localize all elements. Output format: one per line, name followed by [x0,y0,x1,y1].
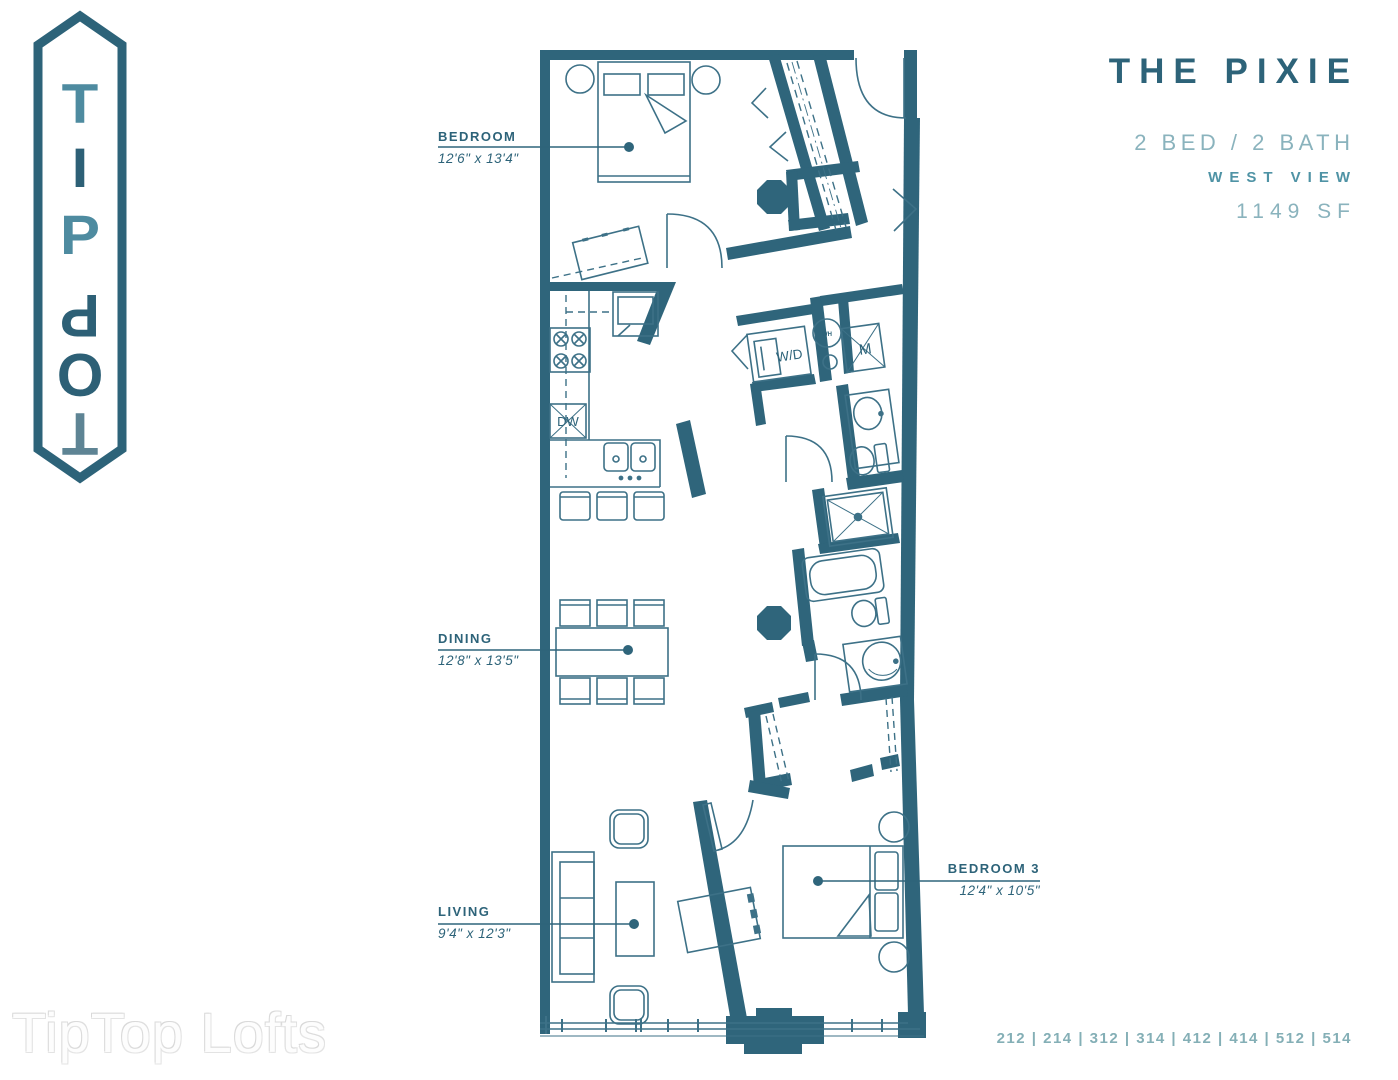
water-heater-label: WH [822,332,832,338]
dresser [573,226,648,279]
bar-stools [560,492,664,520]
room-name: DINING [438,631,519,646]
room-label-bedroom: BEDROOM 12'6" x 13'4" [438,129,519,166]
nightstand-3b [879,942,909,972]
floor-plan: W/D M WH DW [0,0,1398,1080]
room-name: BEDROOM 3 [880,861,1040,876]
bath2-toilet [850,597,889,628]
room-dims: 12'6" x 13'4" [438,151,519,166]
mechanical-label: M [858,340,873,359]
room-name: LIVING [438,904,511,919]
octagon-column-1 [757,180,791,214]
burners [554,332,586,368]
watermark: TipTop Lofts [12,1000,327,1065]
floorplan-page: T I P P O T THE PIXIE 2 BED / 2 BATH WES… [0,0,1398,1080]
unit-numbers: 212 | 214 | 312 | 314 | 412 | 414 | 512 … [997,1030,1352,1047]
bed-1 [598,62,690,182]
room-label-bedroom3: BEDROOM 3 12'4" x 10'5" [880,861,1040,898]
sink [604,443,655,480]
dining-set [556,600,668,704]
sofa [552,852,594,982]
octagon-column-2 [757,606,791,640]
room-dims: 12'4" x 10'5" [880,883,1040,898]
bath2-vanity [843,636,907,692]
coffee-table [616,882,654,956]
room-dims: 9'4" x 12'3" [438,926,511,941]
room-name: BEDROOM [438,129,519,144]
dishwasher-label: DW [557,414,579,429]
nightstand-1a [566,65,594,93]
washer-dryer-label: W/D [775,346,803,365]
nightstand-1b [692,66,720,94]
leader-lines [438,142,1040,929]
bathtub [801,548,884,602]
room-label-living: LIVING 9'4" x 12'3" [438,904,511,941]
room-dims: 12'8" x 13'5" [438,653,519,668]
walls [540,50,926,1054]
room-label-dining: DINING 12'8" x 13'5" [438,631,519,668]
